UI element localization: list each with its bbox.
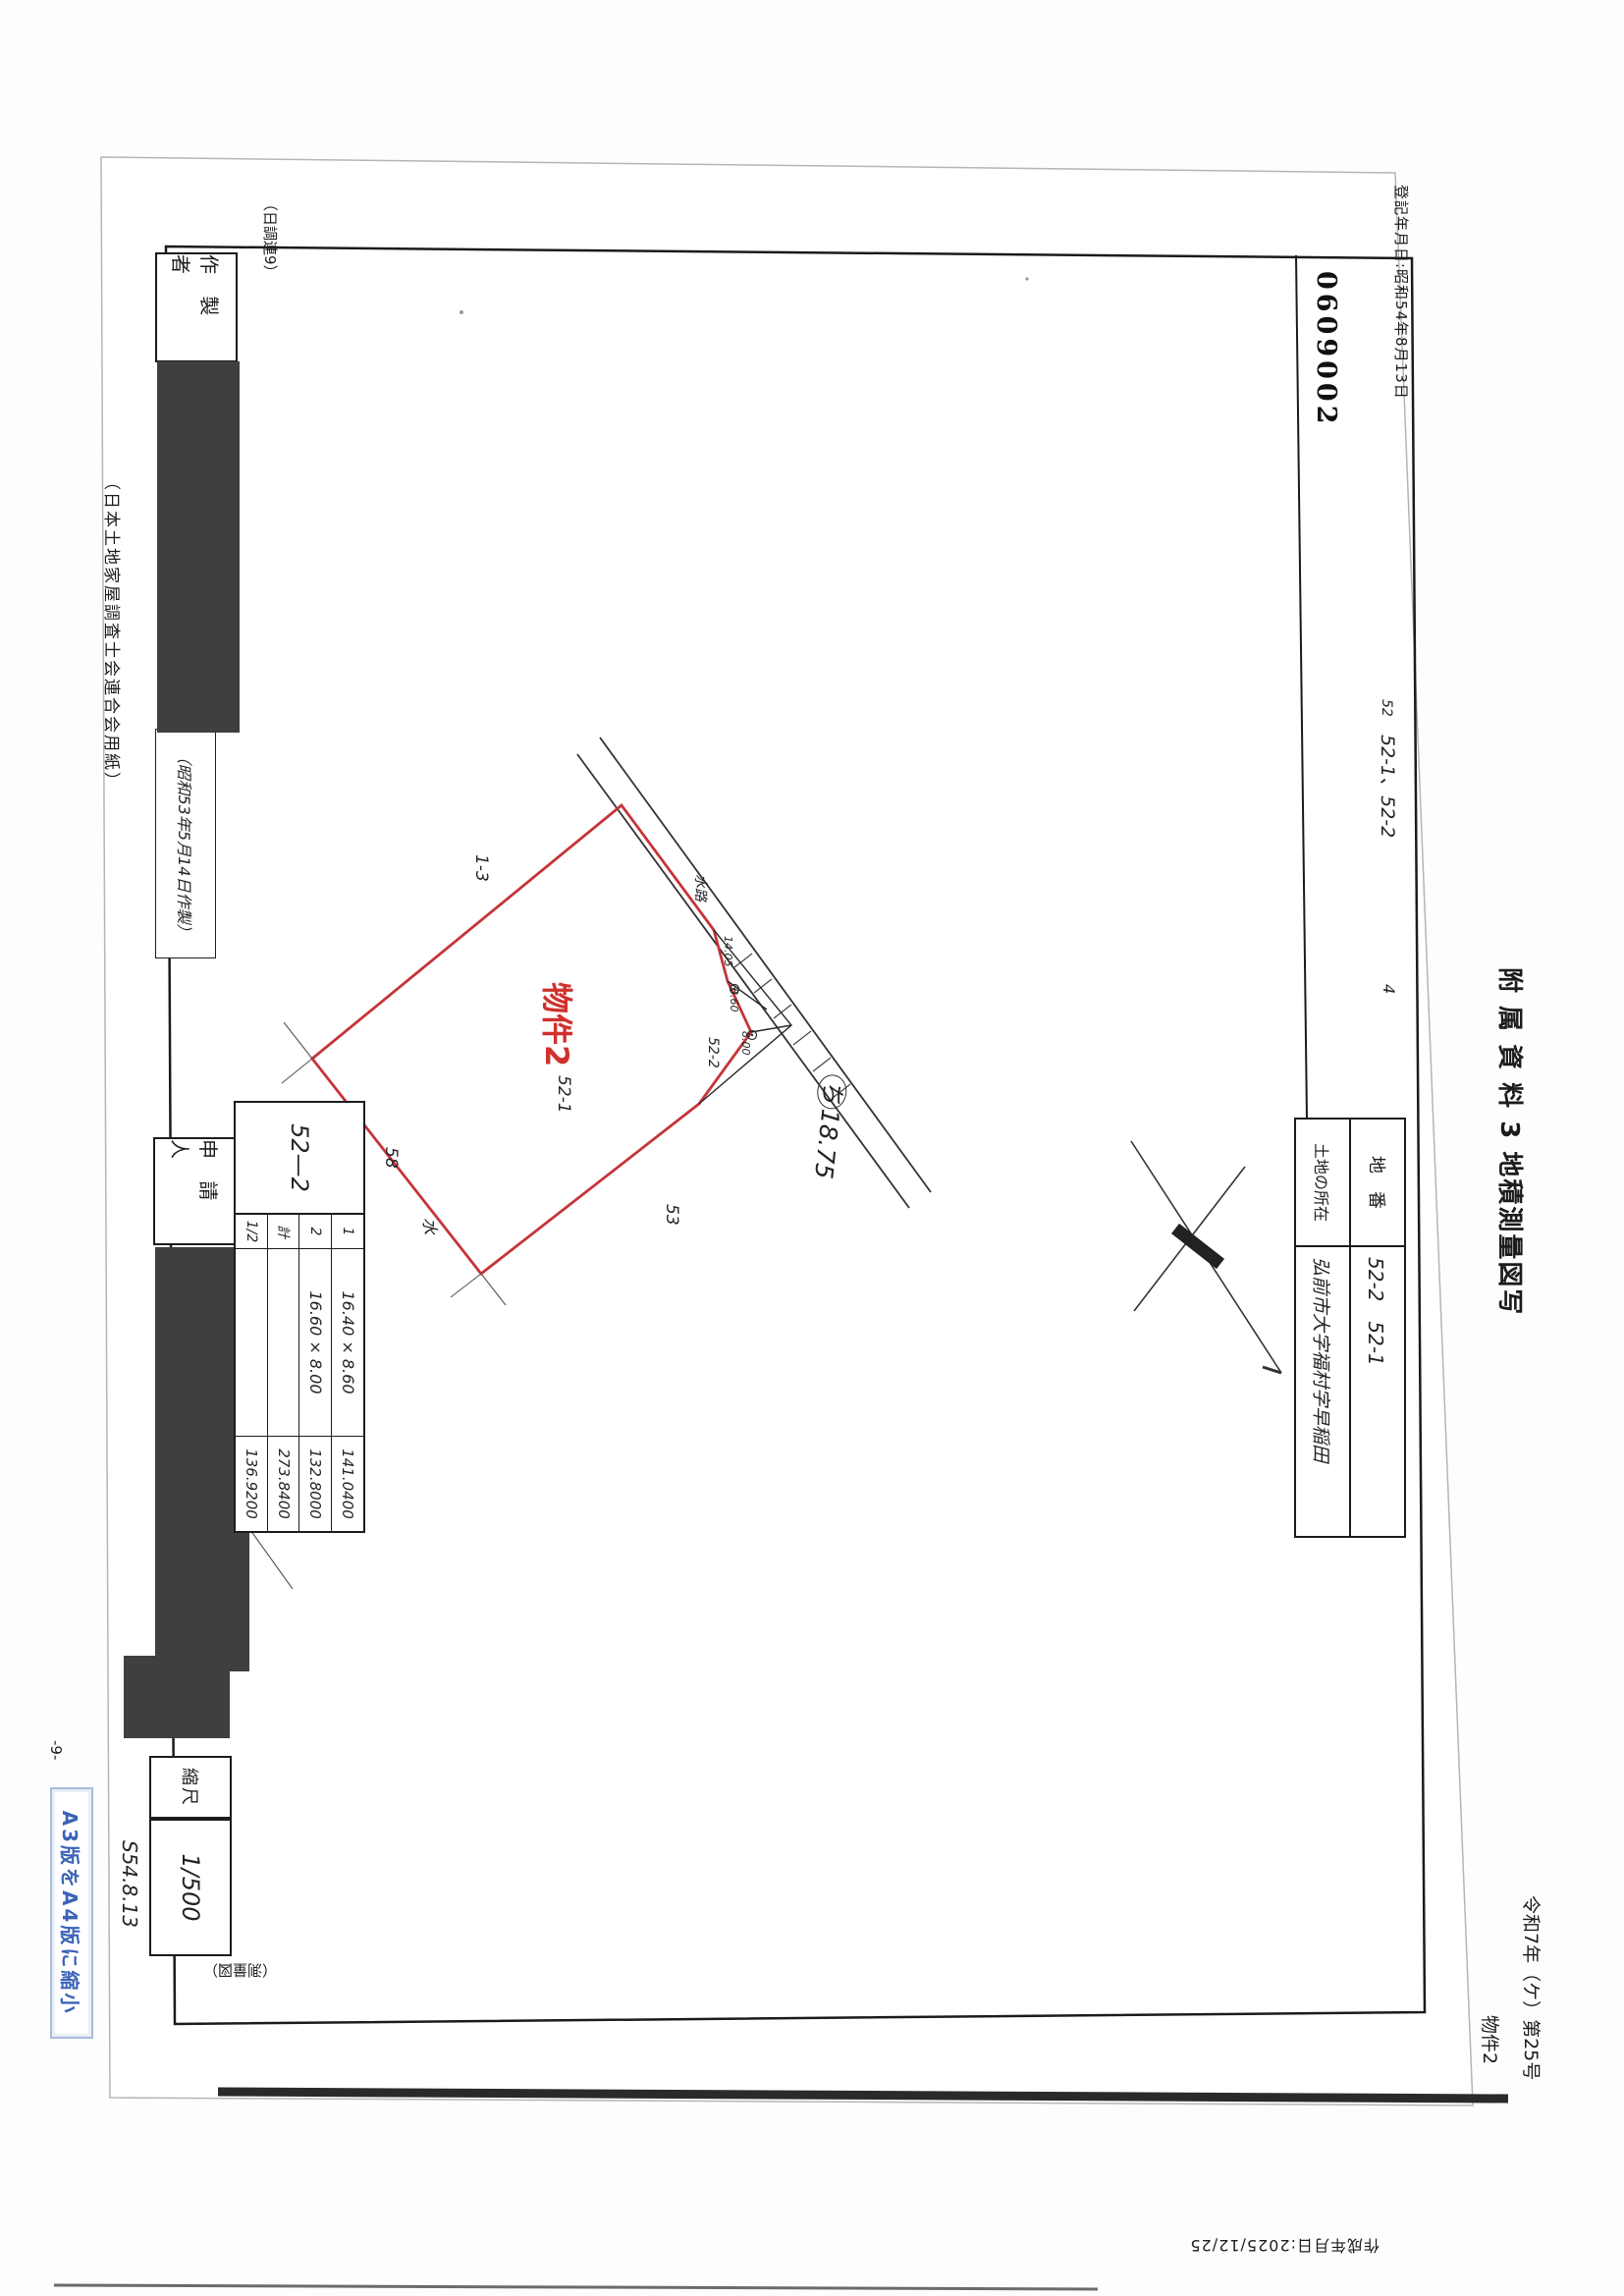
area-calc-parcel: 52—2 [236, 1103, 363, 1215]
parcel-1-3-label: 1-3 [471, 854, 491, 898]
parcel-52-2-label: 52-2 [705, 1037, 721, 1092]
land-location-label: 土地の所在 [1296, 1120, 1349, 1247]
reduction-stamp: A3版をA4版に縮小 [50, 1787, 93, 2039]
form-made-date: （昭和53年5月14日作製） [174, 748, 197, 940]
property-2-map-label: 物件2 [536, 982, 581, 1088]
creation-date-note: 作成年月日:2025/12/25 [1073, 2235, 1380, 2259]
redaction-bar-preparer [157, 361, 240, 733]
registration-date-note: 登記年月日:昭和54年8月13日 [1391, 185, 1412, 452]
margin-note-prefix: 52 [1379, 699, 1394, 731]
redaction-bar-applicant-2 [124, 1656, 230, 1738]
scale-value: 1/500 [177, 1853, 204, 1921]
form-footer-note: （測量図） [177, 1960, 277, 1981]
paper-vendor-note: （日本土地家屋調査士会連合会用紙） [101, 473, 126, 1074]
point-mark: ち [816, 1073, 848, 1111]
margin-note: 52-1、52-2 [1376, 735, 1402, 982]
margin-note-suffix: 4 [1380, 984, 1398, 1006]
preparer-cell: 作 製 者 [155, 252, 238, 362]
form-made-date-box: （昭和53年5月14日作製） [155, 729, 216, 958]
location-table: 地 番 52-2 52-1 土地の所在 弘前市大字福村字早稲田 [1294, 1118, 1406, 1538]
scale-label: 縮尺 [178, 1768, 203, 1807]
scale-label-cell: 縮尺 [149, 1756, 232, 1819]
area-calc-table: 52—2 1 16.40 × 8.60 141.0400 2 16.60 × 8… [234, 1101, 365, 1533]
waterway-label: 水路 [691, 874, 711, 923]
parcel-number-row: 地 番 52-2 52-1 [1349, 1120, 1404, 1536]
area-calc-row: 1 16.40 × 8.60 141.0400 [331, 1215, 363, 1531]
water-label: 水 [419, 1218, 444, 1247]
parcel-number-label: 地 番 [1351, 1120, 1404, 1247]
survey-date-handnote: S54.8.13 [118, 1840, 141, 1958]
scanned-survey-document: 登記年月日:昭和54年8月13日 0609002 附 属 資 料 3 地積測量図… [0, 0, 1624, 2296]
area-calc-row: 計 273.8400 [267, 1215, 299, 1531]
serial-number-stamp: 0609002 [1311, 271, 1341, 428]
attachment-title: 附 属 資 料 3 地積測量図写 [1493, 967, 1530, 1439]
reduction-stamp-label: A3版をA4版に縮小 [58, 1811, 86, 2016]
applicant-label: 申 請 人 [167, 1139, 224, 1243]
land-location-row: 土地の所在 弘前市大字福村字早稲田 [1296, 1120, 1349, 1536]
parcel-58-label: 58 [381, 1147, 401, 1182]
dimension-8-60: 8.60 [728, 988, 740, 1023]
parcel-53-label: 53 [662, 1204, 681, 1239]
dimension-8-00: 8.00 [739, 1031, 752, 1066]
form-code: （日調連9） [260, 196, 281, 289]
area-calc-row: 2 16.60 × 8.00 132.8000 [299, 1215, 332, 1531]
applicant-cell: 申 請 人 [153, 1137, 238, 1245]
dimension-14-05: 14.05 [722, 936, 734, 983]
property-number-note: 物件2 [1478, 2015, 1504, 2102]
land-location-value: 弘前市大字福村字早稲田 [1296, 1247, 1349, 1536]
preparer-label: 作 製 者 [168, 254, 225, 360]
page-number: -9- [47, 1740, 65, 1776]
scale-value-cell: 1/500 [149, 1819, 232, 1956]
parcel-52-1-label: 52-1 [554, 1075, 573, 1128]
parcel-number-value: 52-2 52-1 [1351, 1247, 1404, 1536]
area-calc-row: 1/2 136.9200 [236, 1215, 267, 1531]
case-number-note: 令和7年（ケ）第25号 [1519, 1895, 1545, 2182]
